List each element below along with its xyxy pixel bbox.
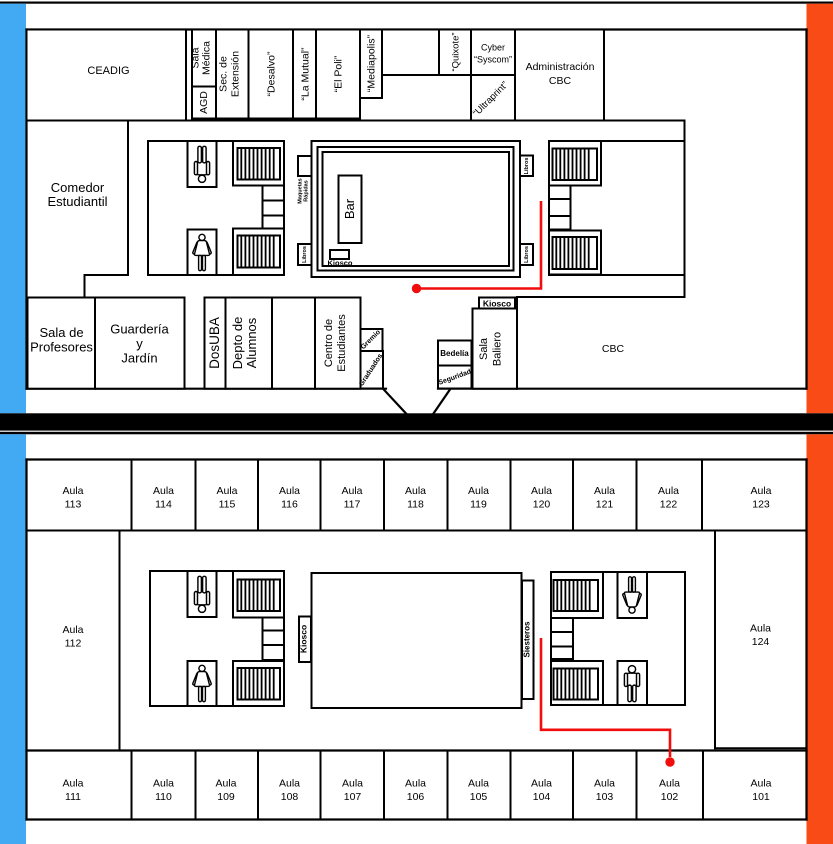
svg-text:Aula: Aula bbox=[405, 778, 426, 790]
svg-text:113: 113 bbox=[65, 499, 82, 511]
svg-text:Estudiantes: Estudiantes bbox=[336, 314, 348, 372]
svg-text:Administración: Administración bbox=[526, 61, 595, 73]
svg-text:“Syscom”: “Syscom” bbox=[474, 55, 512, 65]
svg-text:121: 121 bbox=[596, 499, 614, 511]
svg-text:108: 108 bbox=[281, 791, 299, 803]
svg-text:“Desalvo”: “Desalvo” bbox=[266, 51, 278, 96]
svg-text:Extensión: Extensión bbox=[230, 51, 242, 97]
svg-text:“La Mutual”: “La Mutual” bbox=[300, 47, 312, 101]
svg-text:Aula: Aula bbox=[405, 485, 426, 497]
svg-text:123: 123 bbox=[752, 499, 770, 511]
svg-text:Médica: Médica bbox=[201, 41, 213, 75]
svg-text:120: 120 bbox=[533, 499, 551, 511]
svg-text:116: 116 bbox=[281, 499, 298, 511]
svg-text:Jardín: Jardín bbox=[121, 351, 157, 366]
svg-text:102: 102 bbox=[661, 791, 679, 803]
svg-text:y: y bbox=[136, 336, 143, 351]
svg-text:Aula: Aula bbox=[531, 485, 552, 497]
svg-text:Kiosco: Kiosco bbox=[483, 299, 511, 309]
svg-text:Aula: Aula bbox=[62, 485, 83, 497]
svg-text:Libros: Libros bbox=[302, 246, 308, 263]
svg-text:112: 112 bbox=[65, 638, 82, 650]
svg-text:Cyber: Cyber bbox=[481, 43, 505, 53]
svg-text:Aula: Aula bbox=[594, 485, 615, 497]
svg-text:Aula: Aula bbox=[342, 778, 363, 790]
svg-text:111: 111 bbox=[65, 791, 81, 803]
svg-text:Depto de: Depto de bbox=[230, 317, 245, 370]
svg-text:Aula: Aula bbox=[341, 485, 362, 497]
svg-text:CBC: CBC bbox=[549, 75, 572, 87]
svg-text:Baliero: Baliero bbox=[492, 332, 504, 366]
svg-text:103: 103 bbox=[596, 791, 614, 803]
svg-text:109: 109 bbox=[217, 791, 235, 803]
svg-text:Kiosco: Kiosco bbox=[299, 625, 309, 653]
svg-text:Aula: Aula bbox=[468, 778, 489, 790]
svg-text:Aula: Aula bbox=[750, 623, 771, 635]
svg-text:104: 104 bbox=[533, 791, 551, 803]
svg-text:Aula: Aula bbox=[62, 778, 83, 790]
svg-text:Rápidas: Rápidas bbox=[304, 180, 310, 201]
svg-text:117: 117 bbox=[344, 499, 361, 511]
svg-text:Sec. de: Sec. de bbox=[218, 56, 230, 92]
svg-text:106: 106 bbox=[407, 791, 425, 803]
svg-text:Aula: Aula bbox=[468, 485, 489, 497]
svg-text:110: 110 bbox=[155, 791, 172, 803]
svg-text:Libros: Libros bbox=[524, 246, 530, 263]
svg-text:Centro de: Centro de bbox=[323, 319, 335, 367]
svg-text:DosUBA: DosUBA bbox=[207, 317, 222, 369]
svg-text:Profesores: Profesores bbox=[30, 340, 93, 355]
svg-text:119: 119 bbox=[470, 499, 487, 511]
svg-text:“El Poli”: “El Poli” bbox=[333, 55, 345, 92]
svg-text:105: 105 bbox=[470, 791, 488, 803]
svg-text:Kiosco: Kiosco bbox=[327, 259, 352, 268]
svg-text:Sala: Sala bbox=[478, 337, 490, 360]
svg-text:“Mediapolis”: “Mediapolis” bbox=[366, 34, 378, 92]
svg-text:Aula: Aula bbox=[594, 778, 615, 790]
svg-text:AGD: AGD bbox=[198, 91, 210, 114]
svg-text:101: 101 bbox=[752, 791, 770, 803]
svg-text:Alumnos: Alumnos bbox=[244, 317, 259, 368]
svg-text:Aula: Aula bbox=[216, 485, 237, 497]
svg-text:Aula: Aula bbox=[659, 778, 680, 790]
svg-text:CBC: CBC bbox=[602, 343, 625, 355]
svg-text:Aula: Aula bbox=[62, 624, 83, 636]
svg-text:CEADIG: CEADIG bbox=[87, 65, 129, 77]
svg-text:115: 115 bbox=[219, 499, 236, 511]
svg-text:Aula: Aula bbox=[531, 778, 552, 790]
svg-text:Aula: Aula bbox=[658, 485, 679, 497]
svg-text:Guardería: Guardería bbox=[110, 322, 169, 337]
svg-text:Aula: Aula bbox=[279, 485, 300, 497]
svg-text:Sala de: Sala de bbox=[39, 325, 83, 340]
svg-text:Comedor: Comedor bbox=[51, 180, 105, 195]
svg-text:Siesteros: Siesteros bbox=[523, 621, 532, 658]
svg-text:122: 122 bbox=[660, 499, 678, 511]
svg-text:Aula: Aula bbox=[279, 778, 300, 790]
svg-text:Aula: Aula bbox=[750, 485, 771, 497]
svg-text:107: 107 bbox=[344, 791, 362, 803]
svg-text:Aula: Aula bbox=[153, 778, 174, 790]
svg-text:Bedelía: Bedelía bbox=[440, 349, 469, 358]
svg-text:Aula: Aula bbox=[215, 778, 236, 790]
svg-text:124: 124 bbox=[752, 636, 770, 648]
svg-text:Aula: Aula bbox=[153, 485, 174, 497]
svg-text:Libros: Libros bbox=[524, 158, 530, 175]
svg-text:“Quixote”: “Quixote” bbox=[451, 32, 462, 71]
svg-text:Aula: Aula bbox=[750, 778, 771, 790]
svg-text:Bar: Bar bbox=[342, 198, 357, 219]
svg-text:118: 118 bbox=[407, 499, 424, 511]
svg-text:114: 114 bbox=[155, 499, 172, 511]
svg-text:Estudiantil: Estudiantil bbox=[48, 194, 108, 209]
